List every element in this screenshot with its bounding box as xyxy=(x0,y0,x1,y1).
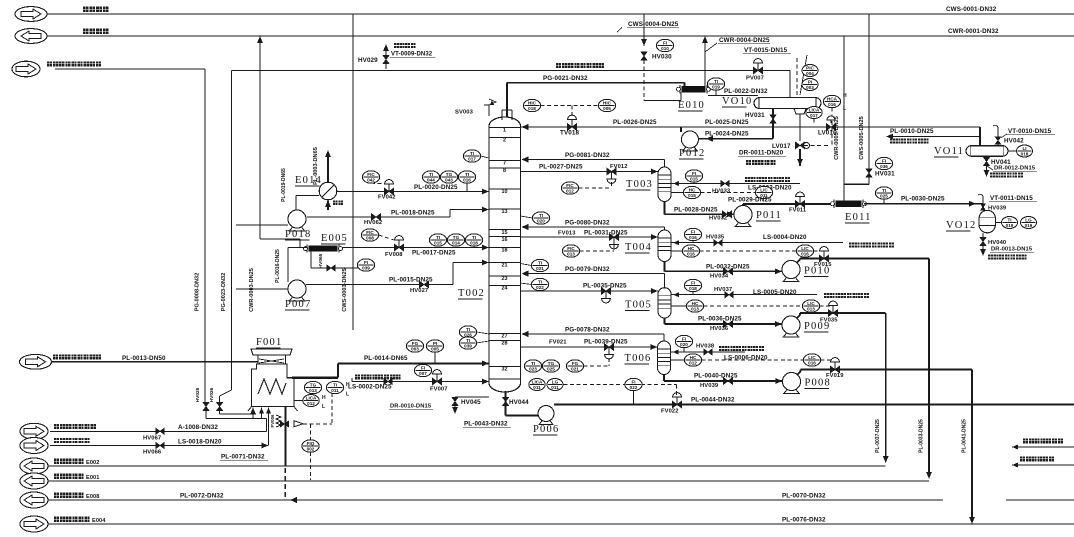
svg-text:LIC: LIC xyxy=(801,246,809,251)
svg-text:FV035: FV035 xyxy=(820,318,838,324)
svg-text:21: 21 xyxy=(502,263,508,269)
svg-text:FV013: FV013 xyxy=(558,231,576,237)
svg-text:TG: TG xyxy=(446,172,453,177)
svg-text:HV033: HV033 xyxy=(712,189,731,195)
svg-text:L: L xyxy=(322,404,325,410)
svg-text:PL-0018-DN25: PL-0018-DN25 xyxy=(391,210,435,217)
svg-text:025: 025 xyxy=(547,367,555,372)
svg-text:LS-0004-DN20: LS-0004-DN20 xyxy=(763,234,807,241)
svg-text:E001: E001 xyxy=(86,475,99,481)
svg-text:PL-0043-DN32: PL-0043-DN32 xyxy=(464,421,508,428)
svg-text:TI: TI xyxy=(429,172,433,177)
svg-text:TI: TI xyxy=(333,383,337,388)
svg-text:012: 012 xyxy=(307,401,315,406)
svg-text:16: 16 xyxy=(502,237,508,243)
svg-text:HV030: HV030 xyxy=(652,54,672,61)
svg-text:020: 020 xyxy=(537,219,545,224)
svg-text:HC: HC xyxy=(688,246,695,251)
svg-text:005: 005 xyxy=(603,106,611,111)
svg-text:CWR-0003-DN25: CWR-0003-DN25 xyxy=(249,268,255,312)
svg-text:PL-0032-DN25: PL-0032-DN25 xyxy=(706,264,750,271)
svg-text:HV062: HV062 xyxy=(364,220,382,226)
svg-text:FIQ: FIQ xyxy=(307,441,315,446)
svg-text:PIC: PIC xyxy=(806,66,814,71)
svg-text:27: 27 xyxy=(502,334,508,340)
svg-text:TI: TI xyxy=(465,172,469,177)
svg-text:TI: TI xyxy=(714,79,718,84)
svg-text:HV031: HV031 xyxy=(745,112,765,119)
svg-text:HV039: HV039 xyxy=(988,206,1007,212)
svg-text:LS-0005-DN20: LS-0005-DN20 xyxy=(753,289,797,296)
svg-text:PL-0039-DN25: PL-0039-DN25 xyxy=(584,339,628,346)
svg-text:TG: TG xyxy=(310,383,317,388)
svg-text:P007: P007 xyxy=(285,299,311,310)
svg-text:FIC: FIC xyxy=(567,246,575,251)
svg-text:002: 002 xyxy=(307,447,315,452)
svg-text:VT-0009-DN32: VT-0009-DN32 xyxy=(391,52,433,58)
svg-text:022: 022 xyxy=(630,385,638,390)
svg-text:T005: T005 xyxy=(625,300,652,311)
svg-text:SV003: SV003 xyxy=(455,110,474,116)
svg-text:P012: P012 xyxy=(679,148,705,159)
svg-text:CWS-0001-DN32: CWS-0001-DN32 xyxy=(946,6,997,13)
svg-text:018: 018 xyxy=(689,286,697,291)
svg-text:E002: E002 xyxy=(86,460,99,466)
svg-text:DR-0010-DN15: DR-0010-DN15 xyxy=(390,404,432,410)
svg-text:CWR-0004-DN25: CWR-0004-DN25 xyxy=(719,37,770,44)
svg-text:24: 24 xyxy=(502,286,508,292)
svg-text:P006: P006 xyxy=(533,424,559,435)
svg-text:L: L xyxy=(346,392,349,398)
svg-text:HV045: HV045 xyxy=(461,399,481,406)
svg-text:LG: LG xyxy=(1025,218,1032,223)
svg-text:FI: FI xyxy=(691,281,695,286)
svg-text:FI: FI xyxy=(691,230,695,235)
svg-text:FV019: FV019 xyxy=(826,373,844,379)
svg-text:FI: FI xyxy=(364,260,368,265)
svg-text:TI: TI xyxy=(531,361,535,366)
svg-text:HV067: HV067 xyxy=(143,436,161,442)
svg-text:023: 023 xyxy=(529,367,537,372)
svg-text:HV066: HV066 xyxy=(143,450,162,456)
svg-text:003: 003 xyxy=(806,85,814,90)
svg-text:PL-0003-DN65: PL-0003-DN65 xyxy=(313,147,319,185)
svg-text:T006: T006 xyxy=(625,353,652,364)
svg-text:021: 021 xyxy=(536,266,544,271)
svg-text:016: 016 xyxy=(801,252,809,257)
svg-text:013: 013 xyxy=(567,252,575,257)
svg-text:PL-0010-DN25: PL-0010-DN25 xyxy=(890,128,934,135)
svg-text:PL-0020-DN25: PL-0020-DN25 xyxy=(414,184,458,191)
svg-text:LS-0006-DN20: LS-0006-DN20 xyxy=(724,355,768,362)
svg-text:E011: E011 xyxy=(845,212,872,223)
svg-text:021: 021 xyxy=(571,367,579,372)
svg-text:VT-0015-DN15: VT-0015-DN15 xyxy=(744,47,788,54)
svg-text:FIC: FIC xyxy=(566,183,574,188)
svg-text:HV032: HV032 xyxy=(709,216,727,222)
svg-text:FV021: FV021 xyxy=(549,340,567,346)
svg-text:004: 004 xyxy=(806,71,814,76)
svg-text:PG-0080-DN32: PG-0080-DN32 xyxy=(565,220,610,227)
svg-text:F001: F001 xyxy=(256,337,282,348)
svg-text:PL-0027-DN25: PL-0027-DN25 xyxy=(539,164,583,171)
svg-text:1: 1 xyxy=(503,128,506,134)
svg-text:FV008: FV008 xyxy=(385,252,403,258)
svg-text:32: 32 xyxy=(502,367,508,373)
svg-text:HIC: HIC xyxy=(603,101,612,106)
svg-text:PL-0041-DN25: PL-0041-DN25 xyxy=(962,419,968,453)
svg-text:HC: HC xyxy=(690,355,697,360)
svg-text:LICA: LICA xyxy=(809,108,820,113)
svg-text:TI: TI xyxy=(538,261,542,266)
svg-text:T004: T004 xyxy=(625,242,652,253)
svg-text:FIC: FIC xyxy=(367,172,375,177)
svg-text:PG-0081-DN32: PG-0081-DN32 xyxy=(565,152,610,159)
svg-text:PG-0023-DN32: PG-0023-DN32 xyxy=(221,273,227,312)
svg-text:PL-0076-DN32: PL-0076-DN32 xyxy=(782,517,826,524)
svg-text:HC: HC xyxy=(692,301,699,306)
svg-text:003: 003 xyxy=(411,347,419,352)
svg-text:PL-0013-DN50: PL-0013-DN50 xyxy=(122,355,166,362)
svg-text:HV039: HV039 xyxy=(700,383,719,389)
svg-text:LICA: LICA xyxy=(532,380,543,385)
svg-text:HV027: HV027 xyxy=(410,288,428,294)
svg-text:CWS-0003-DN25: CWS-0003-DN25 xyxy=(342,268,348,312)
svg-text:019: 019 xyxy=(1025,223,1033,228)
svg-text:PL-0040-DN25: PL-0040-DN25 xyxy=(694,373,738,380)
svg-text:014: 014 xyxy=(452,241,460,246)
svg-text:PG-0008-DN32: PG-0008-DN32 xyxy=(195,273,201,312)
svg-text:TI: TI xyxy=(466,338,470,343)
svg-text:VO11: VO11 xyxy=(934,146,964,157)
svg-text:PL-0035-DN25: PL-0035-DN25 xyxy=(583,283,627,290)
svg-text:FV007: FV007 xyxy=(430,387,448,393)
svg-text:016: 016 xyxy=(687,252,695,257)
svg-text:010: 010 xyxy=(661,46,669,51)
svg-text:LIC: LIC xyxy=(808,355,816,360)
svg-text:HV031: HV031 xyxy=(875,171,895,178)
svg-text:TG: TG xyxy=(548,361,555,366)
svg-text:FIC: FIC xyxy=(366,230,374,235)
svg-text:VT-0010-DN15: VT-0010-DN15 xyxy=(1008,128,1052,135)
svg-text:VT-0011-DN15: VT-0011-DN15 xyxy=(990,195,1033,202)
svg-text:P011: P011 xyxy=(756,210,782,221)
svg-text:011: 011 xyxy=(533,385,541,390)
svg-text:PL-0025-DN25: PL-0025-DN25 xyxy=(705,119,749,126)
svg-text:TI: TI xyxy=(882,188,886,193)
svg-text:H: H xyxy=(322,395,326,401)
svg-text:HCA: HCA xyxy=(827,97,838,102)
svg-text:018: 018 xyxy=(1021,152,1029,157)
svg-text:TI: TI xyxy=(539,213,543,218)
svg-text:DR-0011-DN20: DR-0011-DN20 xyxy=(739,150,784,157)
svg-text:015: 015 xyxy=(434,241,442,246)
svg-text:HC: HC xyxy=(689,188,696,193)
svg-text:013: 013 xyxy=(807,307,815,312)
svg-text:TI: TI xyxy=(470,151,474,156)
svg-text:LIC: LIC xyxy=(807,301,815,306)
svg-text:PL-0024-DN25: PL-0024-DN25 xyxy=(705,131,749,138)
svg-text:044: 044 xyxy=(427,178,435,183)
svg-text:017: 017 xyxy=(810,113,818,118)
svg-text:PL-0028-DN25: PL-0028-DN25 xyxy=(674,207,718,214)
svg-text:PV007: PV007 xyxy=(746,76,764,82)
svg-text:012: 012 xyxy=(566,189,574,194)
svg-text:CWS-0004-DN25: CWS-0004-DN25 xyxy=(628,21,679,28)
svg-text:015: 015 xyxy=(688,193,696,198)
svg-text:LS-0002-DN25: LS-0002-DN25 xyxy=(348,383,392,390)
svg-text:LIC: LIC xyxy=(760,188,768,193)
svg-text:8: 8 xyxy=(503,168,506,174)
svg-text:FV011: FV011 xyxy=(789,208,807,214)
svg-text:HV037: HV037 xyxy=(714,287,732,293)
svg-text:E004: E004 xyxy=(92,518,106,524)
svg-text:022: 022 xyxy=(536,285,544,290)
svg-text:HV042: HV042 xyxy=(1004,138,1024,145)
svg-text:018: 018 xyxy=(470,241,478,246)
svg-text:013: 013 xyxy=(691,307,699,312)
svg-text:042: 042 xyxy=(367,178,375,183)
svg-text:FG: FG xyxy=(412,341,419,346)
svg-text:2: 2 xyxy=(503,138,506,144)
svg-text:FI: FI xyxy=(882,159,886,164)
svg-text:LG: LG xyxy=(552,380,559,385)
svg-text:FI: FI xyxy=(682,337,686,342)
svg-text:PL-0029-DN25: PL-0029-DN25 xyxy=(728,197,772,204)
svg-text:E005: E005 xyxy=(321,233,348,244)
svg-text:E010: E010 xyxy=(678,100,705,111)
svg-text:007: 007 xyxy=(419,371,427,376)
svg-text:020: 020 xyxy=(680,342,688,347)
svg-text:HV025: HV025 xyxy=(195,387,201,402)
svg-text:HV065: HV065 xyxy=(318,253,324,268)
svg-text:016: 016 xyxy=(463,178,471,183)
svg-text:HV040: HV040 xyxy=(988,240,1006,246)
svg-text:PL-0033-DN25: PL-0033-DN25 xyxy=(919,419,925,453)
svg-text:DR-0012-DN15: DR-0012-DN15 xyxy=(994,166,1036,172)
svg-text:TV018: TV018 xyxy=(560,130,579,137)
svg-text:HV035: HV035 xyxy=(706,235,725,241)
svg-text:PL-0044-DN32: PL-0044-DN32 xyxy=(691,397,735,404)
svg-text:TI: TI xyxy=(1007,218,1011,223)
svg-text:P018: P018 xyxy=(285,229,311,240)
svg-text:FV006: FV006 xyxy=(270,414,275,427)
svg-text:18: 18 xyxy=(502,248,508,254)
svg-text:TI: TI xyxy=(538,280,542,285)
svg-text:PL-0022-DN32: PL-0022-DN32 xyxy=(724,88,768,95)
svg-text:FI: FI xyxy=(692,171,696,176)
svg-text:011: 011 xyxy=(551,385,559,390)
svg-text:016: 016 xyxy=(828,102,836,107)
svg-text:017: 017 xyxy=(468,157,476,162)
svg-text:019: 019 xyxy=(1006,223,1014,228)
svg-text:PG-0078-DN32: PG-0078-DN32 xyxy=(565,327,610,334)
svg-text:HV034: HV034 xyxy=(710,274,729,280)
svg-text:T002: T002 xyxy=(458,288,485,299)
svg-text:LS-0018-DN20: LS-0018-DN20 xyxy=(178,438,222,445)
svg-text:PI: PI xyxy=(433,341,437,346)
svg-text:DR-0013-DN15: DR-0013-DN15 xyxy=(991,247,1033,253)
svg-text:FV022: FV022 xyxy=(661,409,679,415)
svg-text:7: 7 xyxy=(503,161,506,167)
svg-text:012: 012 xyxy=(689,361,697,366)
svg-text:HV036: HV036 xyxy=(710,326,729,332)
svg-text:15: 15 xyxy=(502,230,508,236)
svg-text:PL-0014-DN65: PL-0014-DN65 xyxy=(364,355,408,362)
svg-text:043: 043 xyxy=(445,178,453,183)
svg-text:E008: E008 xyxy=(86,494,99,500)
svg-text:VO10: VO10 xyxy=(722,96,752,107)
svg-text:LI: LI xyxy=(1022,146,1026,151)
svg-text:A-1008-DN32: A-1008-DN32 xyxy=(178,424,218,431)
svg-text:HV026: HV026 xyxy=(209,387,215,402)
svg-text:PI: PI xyxy=(808,80,812,85)
svg-text:PG-0021-DN32: PG-0021-DN32 xyxy=(543,75,588,82)
svg-text:LICA: LICA xyxy=(306,396,317,401)
svg-text:FV015: FV015 xyxy=(814,262,832,268)
svg-text:PL-0070-DN32: PL-0070-DN32 xyxy=(782,493,826,500)
svg-text:TI: TI xyxy=(472,235,476,240)
svg-text:FV012: FV012 xyxy=(610,164,628,170)
svg-text:PL-0071-DN32: PL-0071-DN32 xyxy=(221,454,265,461)
svg-text:039: 039 xyxy=(464,344,472,349)
svg-text:HV029: HV029 xyxy=(358,57,378,64)
svg-text:PL-0037-DN25: PL-0037-DN25 xyxy=(875,419,881,453)
svg-text:PG-0079-DN32: PG-0079-DN32 xyxy=(565,266,610,273)
svg-text:016: 016 xyxy=(689,235,697,240)
svg-text:10: 10 xyxy=(502,189,508,195)
svg-text:PL-0019-DN65: PL-0019-DN65 xyxy=(281,168,287,202)
svg-text:HV038: HV038 xyxy=(696,344,715,350)
svg-text:008: 008 xyxy=(366,236,374,241)
svg-text:005: 005 xyxy=(431,347,439,352)
svg-text:28: 28 xyxy=(502,341,508,347)
svg-text:036: 036 xyxy=(880,164,888,169)
svg-text:CWS-0005-DN25: CWS-0005-DN25 xyxy=(859,116,865,160)
svg-text:VO12: VO12 xyxy=(946,220,976,231)
svg-text:025: 025 xyxy=(880,194,888,199)
svg-text:TI: TI xyxy=(466,327,470,332)
svg-text:FV042: FV042 xyxy=(378,195,396,201)
svg-text:13: 13 xyxy=(502,209,508,215)
svg-text:FG: FG xyxy=(572,361,579,366)
svg-text:PL-0031-DN25: PL-0031-DN25 xyxy=(584,230,628,237)
svg-text:PL-0026-DN25: PL-0026-DN25 xyxy=(613,119,657,126)
svg-text:PL-0072-DN32: PL-0072-DN32 xyxy=(180,493,224,500)
svg-text:015: 015 xyxy=(690,177,698,182)
svg-text:FI: FI xyxy=(663,41,667,46)
svg-text:018: 018 xyxy=(528,106,536,111)
svg-text:FI: FI xyxy=(421,366,425,371)
svg-text:FI: FI xyxy=(631,380,635,385)
svg-text:CWR-0001-DN32: CWR-0001-DN32 xyxy=(948,28,999,35)
svg-text:PL-0016-DN25: PL-0016-DN25 xyxy=(275,249,281,283)
svg-text:039: 039 xyxy=(362,266,370,271)
svg-text:23: 23 xyxy=(502,276,508,282)
svg-text:011: 011 xyxy=(331,388,339,393)
svg-text:HIC: HIC xyxy=(528,101,537,106)
svg-text:TG: TG xyxy=(453,235,460,240)
svg-text:T003: T003 xyxy=(626,179,653,190)
svg-text:PL-0017-DN25: PL-0017-DN25 xyxy=(412,250,456,257)
svg-text:019: 019 xyxy=(712,85,720,90)
svg-text:PL-0030-DN25: PL-0030-DN25 xyxy=(901,196,945,203)
svg-text:TI: TI xyxy=(436,235,440,240)
svg-text:P008: P008 xyxy=(805,378,831,389)
svg-text:013: 013 xyxy=(309,388,317,393)
svg-text:016: 016 xyxy=(808,361,816,366)
svg-text:HV044: HV044 xyxy=(509,399,529,406)
svg-text:PL-0036-DN25: PL-0036-DN25 xyxy=(698,316,742,323)
svg-text:CWR-0005-DN25: CWR-0005-DN25 xyxy=(834,116,840,160)
